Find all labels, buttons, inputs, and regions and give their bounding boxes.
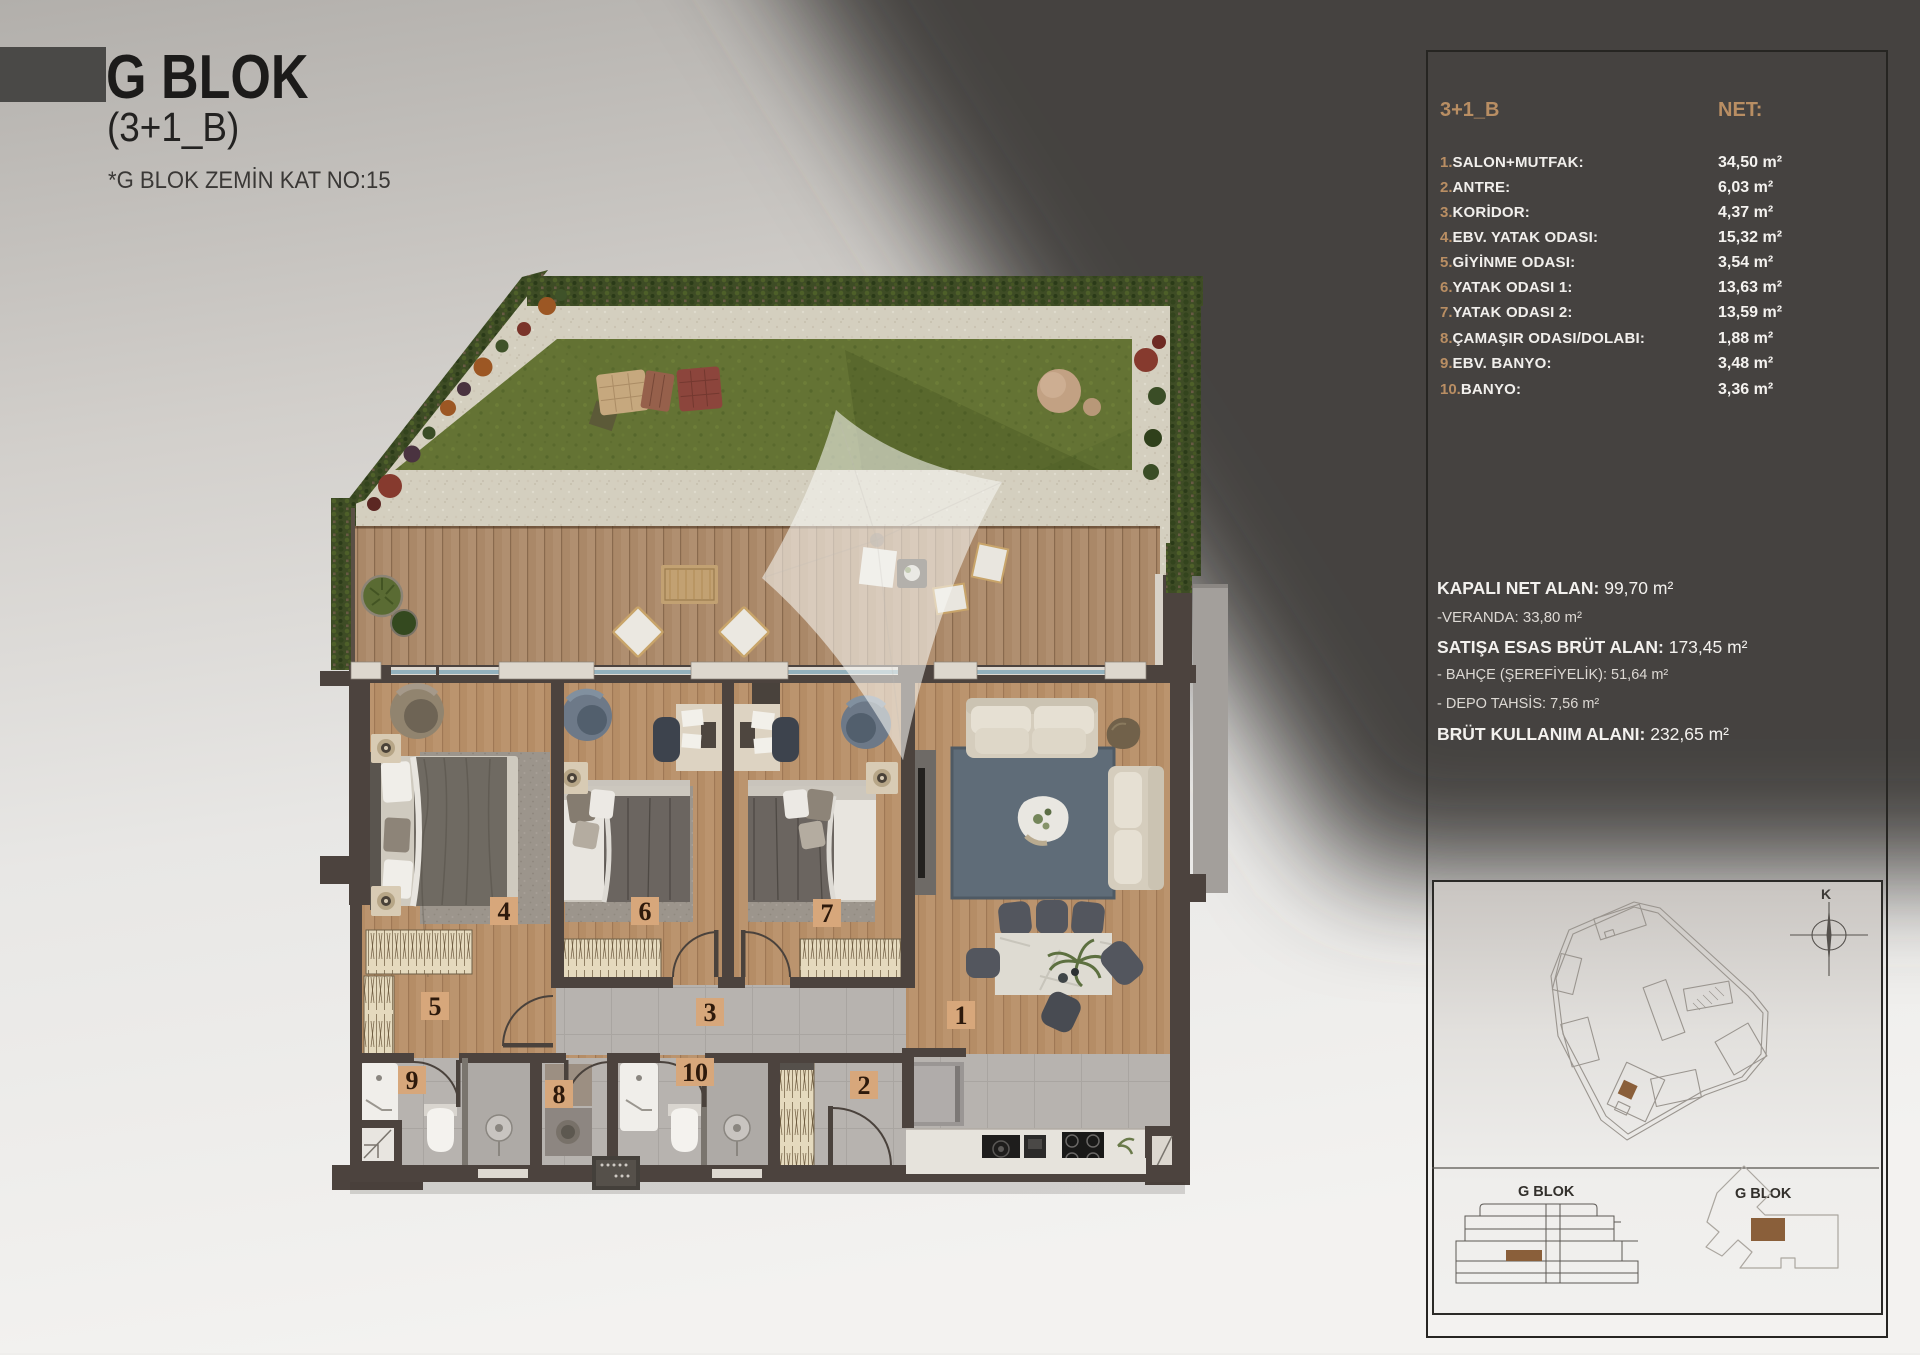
svg-text:2: 2 (858, 1071, 871, 1100)
svg-text:K: K (1821, 886, 1831, 902)
svg-text:G BLOK: G BLOK (1518, 1184, 1575, 1200)
svg-text:9: 9 (406, 1066, 419, 1095)
svg-text:6: 6 (639, 897, 652, 926)
svg-text:5: 5 (429, 992, 442, 1021)
svg-text:G BLOK: G BLOK (1735, 1186, 1792, 1202)
svg-text:10: 10 (682, 1058, 708, 1087)
svg-text:8: 8 (553, 1080, 566, 1109)
svg-text:3: 3 (704, 998, 717, 1027)
svg-text:4: 4 (498, 897, 511, 926)
svg-text:7: 7 (821, 899, 834, 928)
svg-text:1: 1 (955, 1001, 968, 1030)
